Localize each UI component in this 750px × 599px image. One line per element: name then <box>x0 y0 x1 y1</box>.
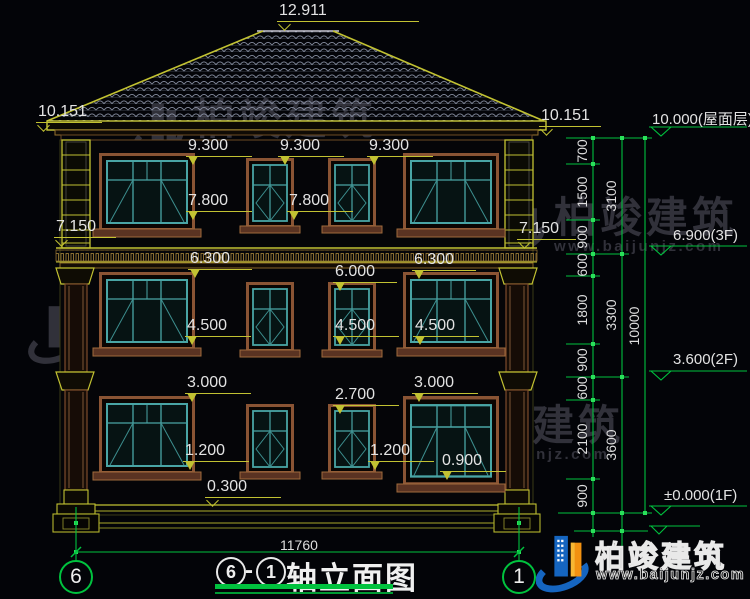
chain-segment: 700 <box>574 139 590 162</box>
dim-f3-window-top: 9.300 <box>186 136 252 157</box>
dim-f2-window-top: 6.300 <box>412 250 476 271</box>
title-underline-thin <box>215 592 393 594</box>
level-label-3f: 6.900(3F) <box>673 227 738 244</box>
chain-segment: 900 <box>574 484 590 507</box>
dim-f3-window-top: 9.300 <box>367 136 433 157</box>
title-underline <box>215 584 393 589</box>
dim-f1-window-sill: 1.200 <box>183 441 249 462</box>
dim-f2-window-top: 6.000 <box>333 262 397 283</box>
dim-f1-window-sill: 1.200 <box>368 441 434 462</box>
level-label-2f: 3.600(2F) <box>673 351 738 368</box>
level-label-roof: 10.000(屋面层) <box>652 108 750 129</box>
dim-roof-peak: 12.911 <box>277 1 419 22</box>
overall-width-dimension: 11760 <box>280 537 318 553</box>
dim-plinth: 0.300 <box>205 477 281 498</box>
axis-bubble-left: 6 <box>61 562 91 592</box>
chain-subtotal: 3300 <box>603 299 619 330</box>
roof-tile-hatch <box>47 31 544 121</box>
dim-cornice-left: 7.150 <box>54 217 116 238</box>
cad-elevation-screenshot: 柏竣建筑 www.baijunjz.com 柏竣建筑 www.baijunjz.… <box>0 0 750 599</box>
dim-f2-window-sill: 4.500 <box>185 316 251 337</box>
dim-f2-window-top: 6.300 <box>188 249 252 270</box>
dim-f3-window-sill: 7.800 <box>186 191 252 212</box>
level-label-1f: ±0.000(1F) <box>664 487 737 504</box>
dim-f2-window-sill: 4.500 <box>333 316 399 337</box>
chain-segment: 600 <box>574 253 590 276</box>
dim-f1-window-top: 3.000 <box>412 373 478 394</box>
chain-segment: 600 <box>574 376 590 399</box>
dim-f1-window-top: 2.700 <box>333 385 399 406</box>
brand-logo-url: www.baijunjz.com <box>596 567 745 583</box>
chain-segment: 900 <box>574 348 590 371</box>
title-axis-circle-a: 6 <box>216 557 246 587</box>
dim-f2-window-sill: 4.500 <box>413 316 479 337</box>
axis-bubble-right: 1 <box>504 562 534 592</box>
title-axis-circle-b: 1 <box>256 557 286 587</box>
roof <box>47 31 544 121</box>
dim-cornice-right: 7.150 <box>517 219 576 240</box>
dim-f1-window-sill: 0.900 <box>440 451 506 472</box>
dim-f3-window-top: 9.300 <box>278 136 344 157</box>
brand-logo-icon <box>536 530 594 594</box>
elevation-drawing <box>0 0 750 599</box>
dim-eave-right: 10.151 <box>539 106 601 127</box>
title-axis-separator: - <box>245 557 253 585</box>
dim-f3-window-sill: 7.800 <box>287 191 353 212</box>
chain-segment: 1800 <box>574 294 590 325</box>
chain-subtotal: 3600 <box>603 429 619 460</box>
level-markers <box>649 127 747 534</box>
chain-subtotal: 3100 <box>603 180 619 211</box>
chain-segment: 2100 <box>574 423 590 454</box>
chain-segment: 1500 <box>574 176 590 207</box>
dim-eave-left: 10.151 <box>36 102 102 123</box>
chain-segment: 900 <box>574 225 590 248</box>
chain-total: 10000 <box>626 307 642 346</box>
dim-f1-window-top: 3.000 <box>185 373 251 394</box>
